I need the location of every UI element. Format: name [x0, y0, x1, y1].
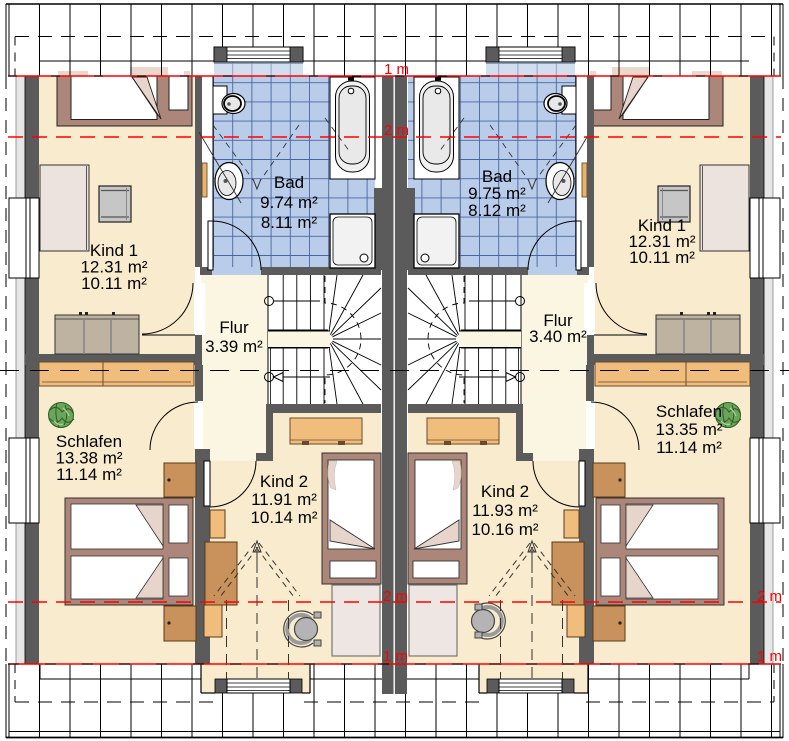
svg-text:2 m: 2 m [757, 588, 782, 605]
svg-text:2 m: 2 m [383, 588, 408, 605]
svg-text:Schlafen: Schlafen [656, 402, 722, 421]
svg-text:10.14 m²: 10.14 m² [250, 508, 317, 527]
svg-text:10.11 m²: 10.11 m² [81, 274, 147, 293]
svg-text:8.11 m²: 8.11 m² [261, 213, 318, 232]
svg-text:11.14 m²: 11.14 m² [56, 465, 122, 484]
svg-text:Kind 2: Kind 2 [260, 472, 308, 491]
svg-text:Bad: Bad [274, 173, 304, 192]
svg-text:10.11 m²: 10.11 m² [629, 248, 695, 267]
svg-text:2 m: 2 m [384, 122, 409, 139]
svg-text:11.91 m²: 11.91 m² [251, 490, 317, 509]
svg-text:Flur: Flur [219, 318, 249, 337]
svg-text:10.16 m²: 10.16 m² [471, 520, 538, 539]
svg-text:1 m: 1 m [383, 648, 408, 665]
svg-text:1 m: 1 m [384, 61, 409, 78]
svg-text:11.93 m²: 11.93 m² [472, 501, 538, 520]
svg-text:11.14 m²: 11.14 m² [656, 438, 722, 457]
svg-text:13.35 m²: 13.35 m² [655, 420, 722, 439]
svg-text:Kind 2: Kind 2 [481, 482, 529, 501]
svg-text:9.74 m²: 9.74 m² [260, 193, 318, 212]
svg-text:3.40 m²: 3.40 m² [529, 327, 587, 346]
svg-text:8.12 m²: 8.12 m² [468, 201, 526, 220]
svg-text:3.39 m²: 3.39 m² [205, 337, 263, 356]
svg-text:1 m: 1 m [757, 648, 782, 665]
